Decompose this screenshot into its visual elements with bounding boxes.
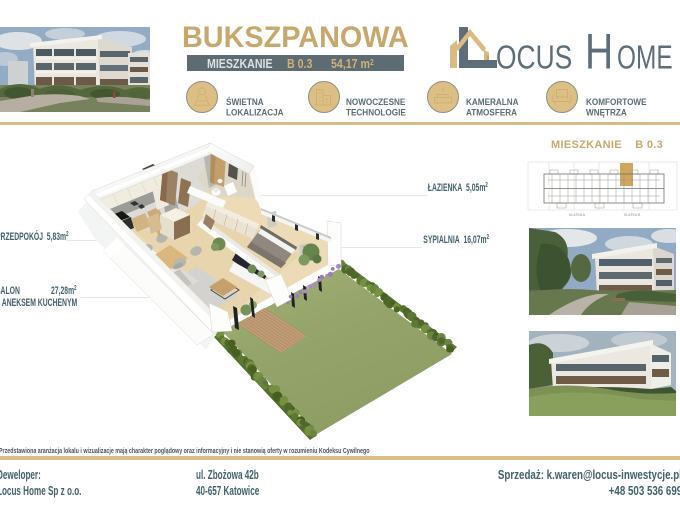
svg-text:OCUS: OCUS <box>496 40 572 76</box>
svg-text:LOKALIZACJA: LOKALIZACJA <box>226 107 284 118</box>
svg-text:KLATKA B: KLATKA B <box>624 213 641 217</box>
svg-text:KOMFORTOWE: KOMFORTOWE <box>586 96 647 107</box>
svg-text:KLATKA A: KLATKA A <box>569 213 586 217</box>
svg-text:KAMERALNA: KAMERALNA <box>466 96 519 107</box>
svg-text:ATMOSFERA: ATMOSFERA <box>466 107 518 118</box>
svg-text:TECHNOLOGIE: TECHNOLOGIE <box>346 107 406 118</box>
svg-text:NOWOCZESNE: NOWOCZESNE <box>346 96 405 107</box>
svg-text:H: H <box>585 23 613 76</box>
svg-text:OME: OME <box>617 40 673 76</box>
svg-text:ŚWIETNA: ŚWIETNA <box>226 95 264 107</box>
svg-text:WNĘTRZA: WNĘTRZA <box>586 107 627 118</box>
